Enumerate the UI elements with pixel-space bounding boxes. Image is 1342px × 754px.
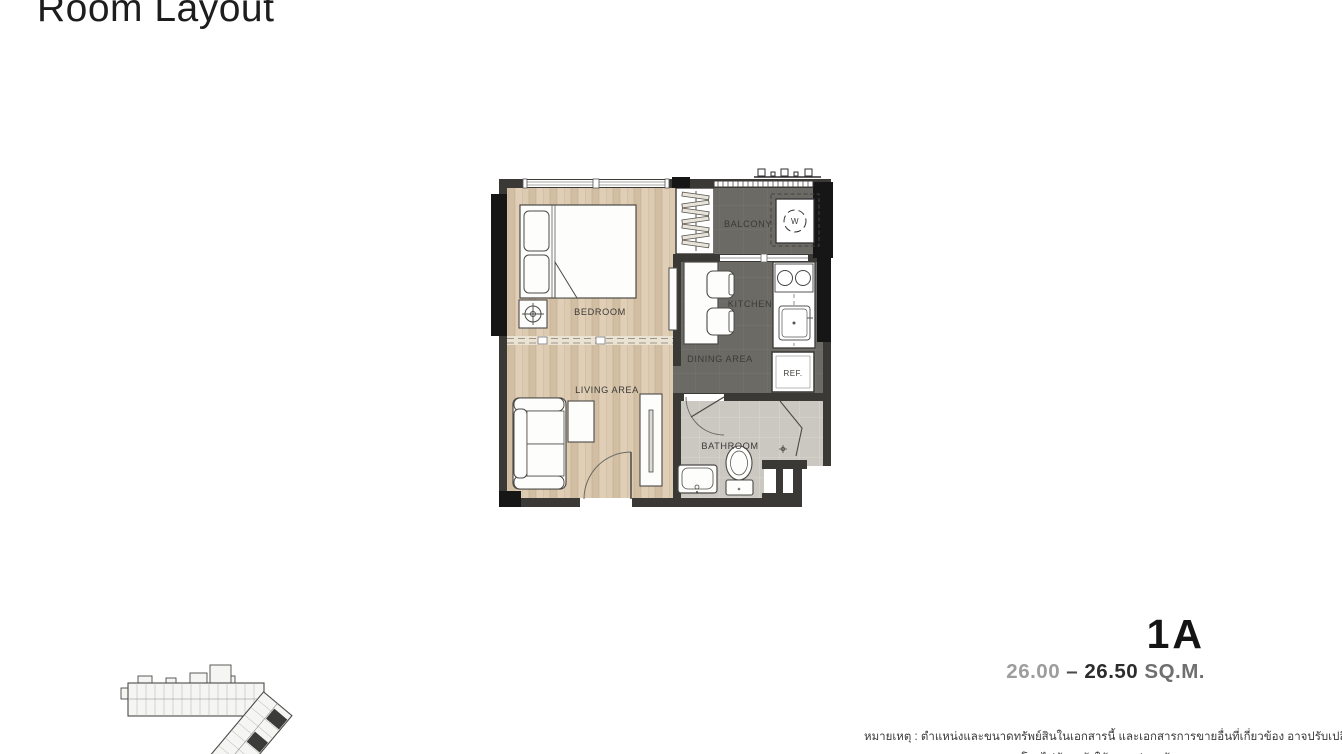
site-key-plan: [116, 658, 336, 754]
disclaimer-line2: โดยไม่ต้องแจ้งให้ทราบล่วงหน้า: [864, 750, 1334, 754]
bed: [520, 205, 636, 298]
balcony-railing: [714, 181, 813, 187]
kitchen-counter: [773, 262, 815, 348]
sofa: [513, 398, 566, 489]
dining-label: DINING AREA: [687, 354, 753, 364]
kitchen-sink-icon: [779, 306, 813, 340]
bedroom-label: BEDROOM: [574, 307, 626, 317]
bathroom-sink: [678, 465, 717, 493]
refrigerator: REF.: [772, 352, 814, 392]
ac-ledge-icon: [754, 169, 821, 177]
balcony-sliding-door: [720, 254, 808, 262]
unit-info: 1A 26.00 – 26.50 SQ.M.: [1006, 612, 1205, 684]
bedroom-slide-panel: [669, 268, 677, 330]
washer: W: [771, 194, 819, 246]
unit-name: 1A: [1006, 612, 1205, 657]
disclaimer-line1: หมายเหตุ : ตำแหน่งและขนาดทรัพย์สินในเอกส…: [864, 728, 1334, 746]
kitchen-label: KITCHEN: [728, 299, 773, 309]
area-dash: –: [1060, 660, 1084, 683]
site-key-plan-drawing: [116, 658, 336, 754]
sliding-partition: [507, 336, 676, 345]
area-unit: SQ.M.: [1144, 660, 1205, 683]
washer-label: W: [791, 217, 799, 226]
balcony-label: BALCONY: [724, 219, 772, 229]
bedroom-window: [523, 179, 669, 188]
fridge-label: REF.: [784, 369, 803, 378]
crosshair-unit-icon: [519, 300, 547, 328]
area-low: 26.00: [1006, 660, 1060, 683]
building-outline: [121, 665, 292, 754]
floor-plan-drawing: W: [480, 158, 850, 510]
unit-area-range: 26.00 – 26.50 SQ.M.: [1006, 660, 1205, 684]
disclaimer: หมายเหตุ : ตำแหน่งและขนาดทรัพย์สินในเอกส…: [864, 728, 1334, 754]
tv-console: [640, 394, 662, 486]
page-title: Room Layout: [37, 0, 274, 31]
floor-plan: W: [480, 158, 850, 510]
room-layout-page: Room Layout: [0, 0, 1342, 754]
service-shaft: [762, 460, 831, 507]
toilet: [726, 446, 753, 495]
living-label: LIVING AREA: [575, 385, 639, 395]
wardrobe-closet: [676, 188, 714, 254]
coffee-table: [568, 401, 594, 442]
bathroom-label: BATHROOM: [701, 441, 758, 451]
area-high: 26.50: [1084, 660, 1144, 683]
